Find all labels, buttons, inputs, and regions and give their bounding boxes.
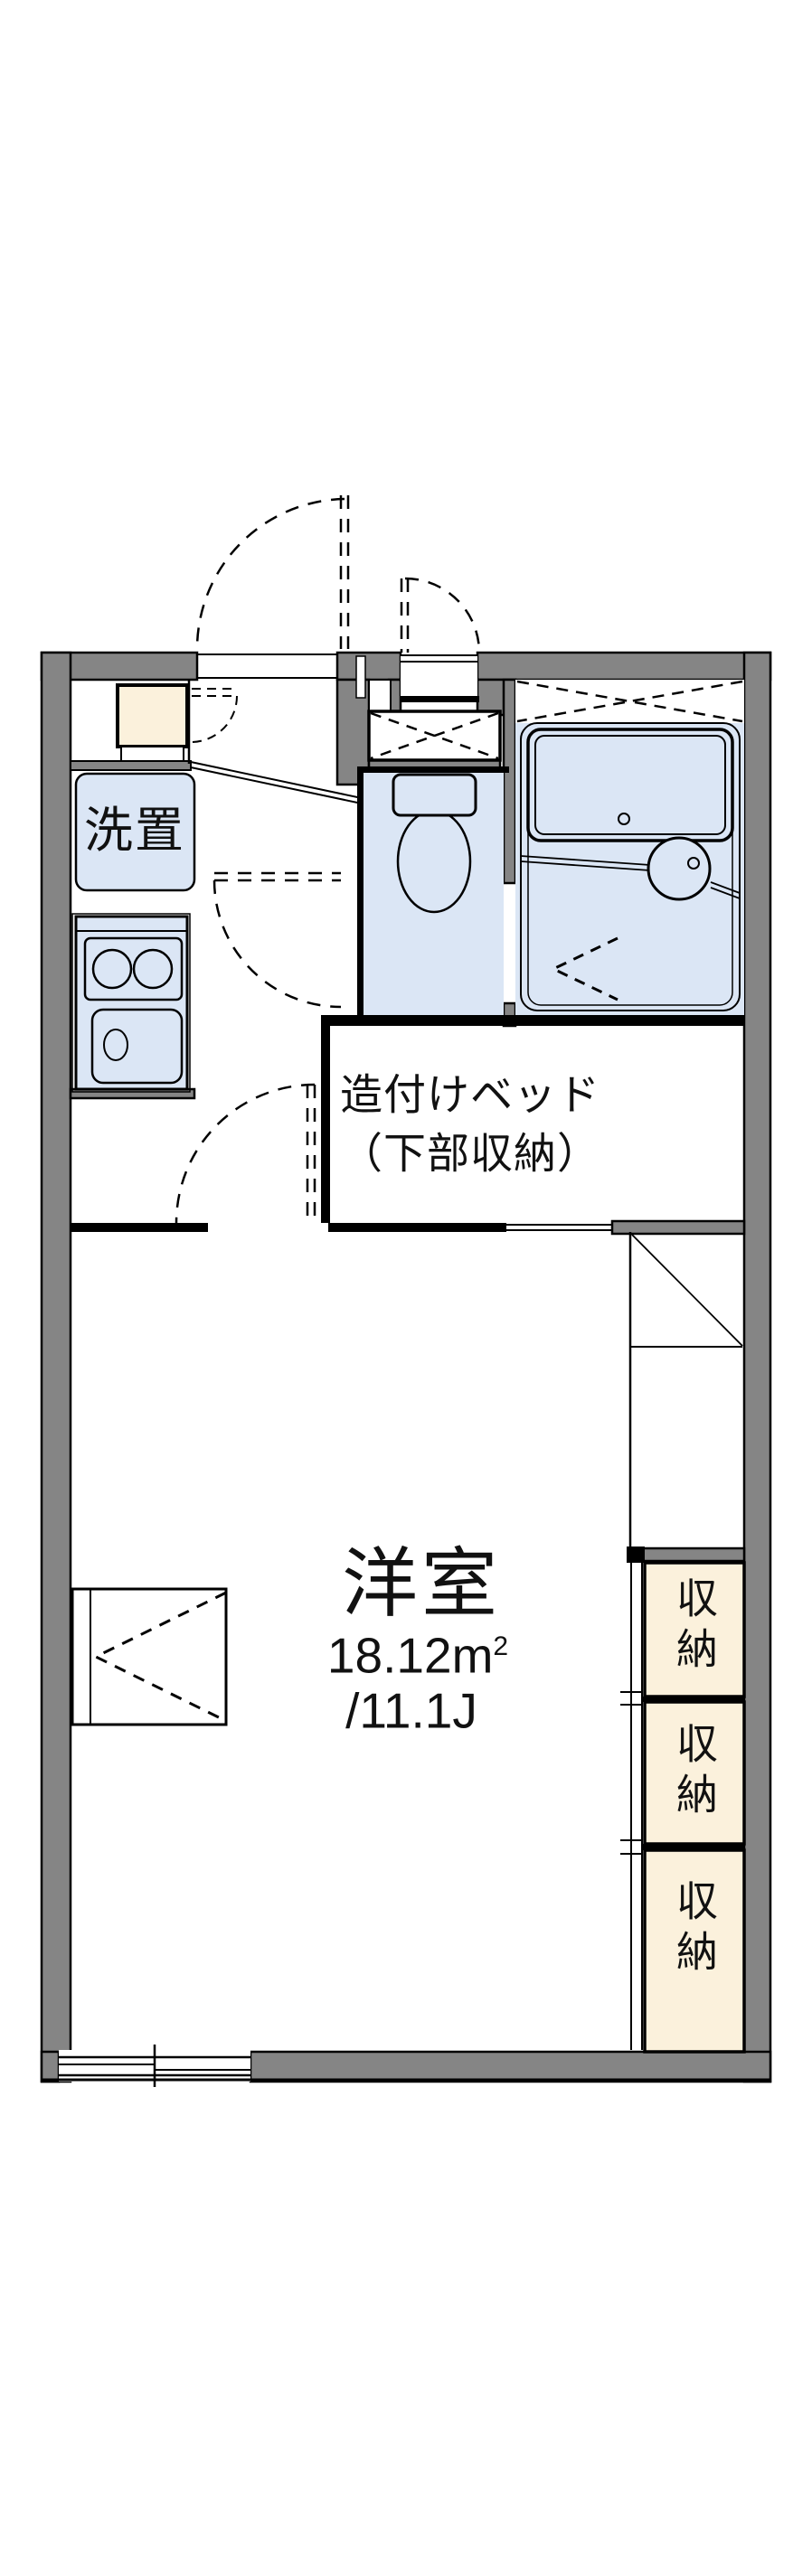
- bathroom: [515, 680, 744, 1015]
- floor-plan-drawing: [0, 0, 812, 2576]
- label-built-in-bed: 造付けベッド: [340, 1074, 600, 1116]
- entrance-door-swing: [401, 578, 479, 653]
- label-room-size-jo: /11.1J: [345, 1687, 477, 1736]
- bed-wall-thin-section: [506, 1225, 612, 1230]
- side-window: [72, 1589, 226, 1725]
- washing-machine-pan: [71, 680, 191, 770]
- toilet-room: [364, 773, 504, 1015]
- label-room-area: 18.12m2: [327, 1631, 508, 1681]
- toilet-icon: [393, 775, 476, 912]
- label-storage-1: 収納: [674, 1576, 715, 1678]
- label-storage-3: 収納: [674, 1879, 715, 1980]
- entry-step-line: [191, 762, 362, 804]
- toilet-door-swing: [214, 873, 341, 1007]
- kitchen-door-opening: [197, 654, 337, 678]
- bathtub-icon: [528, 729, 732, 841]
- kitchen-unit: [72, 914, 190, 1092]
- storage-track: [620, 1563, 642, 2050]
- label-laundry-space: 洗置: [84, 806, 185, 855]
- kitchen-door-swing: [197, 495, 348, 649]
- room-area-value: 18.12m: [327, 1628, 493, 1684]
- label-storage-2: 収納: [674, 1722, 715, 1823]
- small-door-swing: [192, 689, 237, 742]
- shoe-cabinet: [369, 711, 500, 760]
- label-under-bed-storage: （下部収納）: [340, 1133, 600, 1175]
- stove-icon: [85, 938, 182, 1000]
- wash-basin-icon: [648, 838, 710, 899]
- hall-door-swing: [176, 1085, 315, 1223]
- room-area-sup: 2: [493, 1631, 508, 1661]
- label-western-room: 洋室: [342, 1546, 501, 1622]
- refrigerator-space: [630, 1232, 742, 1548]
- floor-plan-page: 洗置 造付けベッド （下部収納） 洋室 18.12m2 /11.1J 収納 収納…: [0, 0, 812, 2576]
- sink-icon: [92, 1010, 182, 1083]
